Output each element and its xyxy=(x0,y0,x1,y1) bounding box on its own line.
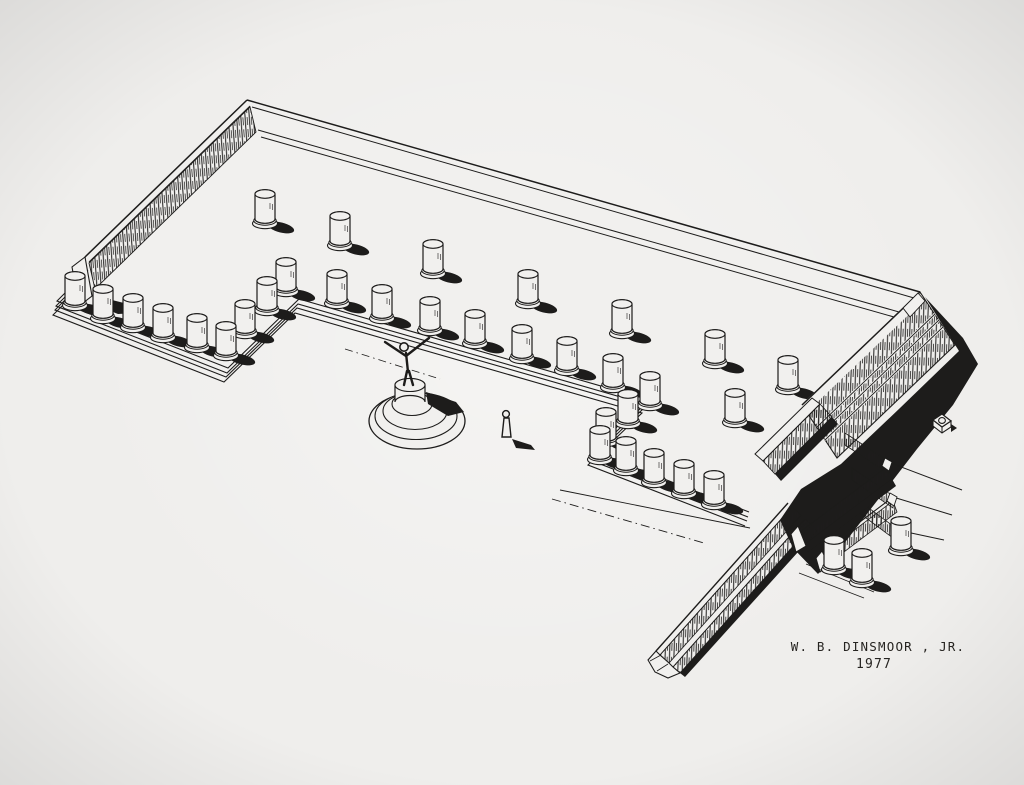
column-stub xyxy=(889,517,932,563)
statue-monument xyxy=(369,338,465,449)
annex-structure xyxy=(791,433,962,598)
statue-head xyxy=(400,343,408,351)
scale-figure-head xyxy=(503,411,510,418)
scale-figure xyxy=(502,411,535,450)
scale-figure-shadow xyxy=(512,439,535,450)
well-block-shadow xyxy=(951,424,957,432)
signature-year: 1977 xyxy=(856,657,892,672)
axonometric-reconstruction-drawing: W. B. DINSMOOR , JR. 1977 xyxy=(0,0,1024,785)
column-stub xyxy=(850,549,893,595)
ramp-upper-hatch xyxy=(660,507,801,663)
artist-signature: W. B. DINSMOOR , JR. xyxy=(791,639,966,654)
drawing-sheet: W. B. DINSMOOR , JR. 1977 xyxy=(0,0,1024,785)
